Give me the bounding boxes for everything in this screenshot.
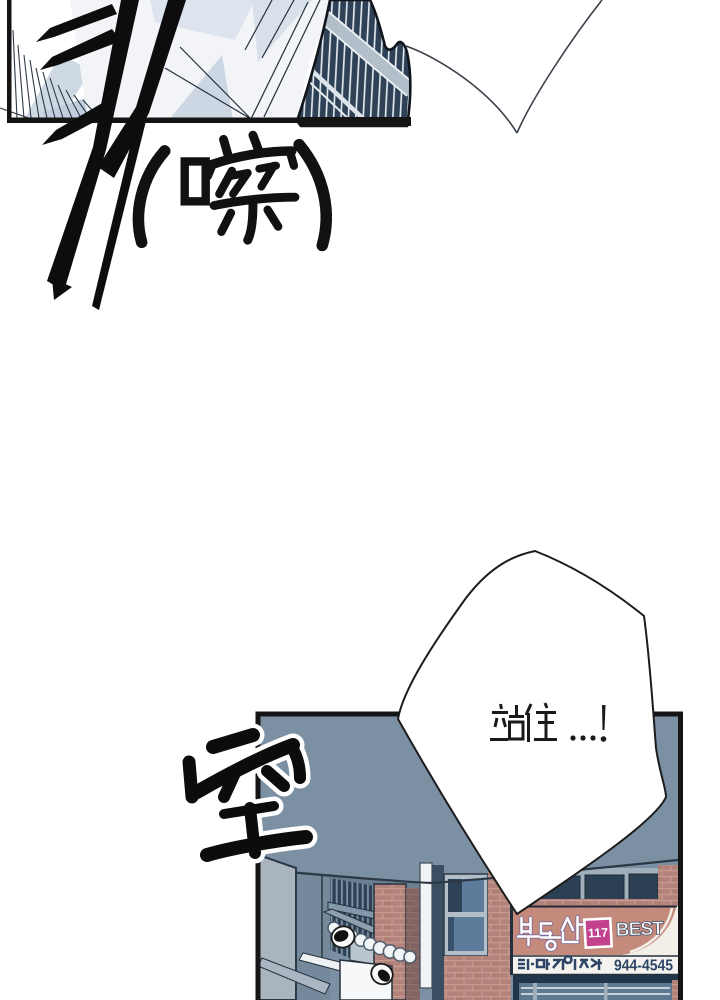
svg-text:944-4545: 944-4545 — [614, 958, 673, 975]
svg-text:117: 117 — [588, 925, 609, 940]
svg-text:BEST: BEST — [615, 918, 664, 941]
